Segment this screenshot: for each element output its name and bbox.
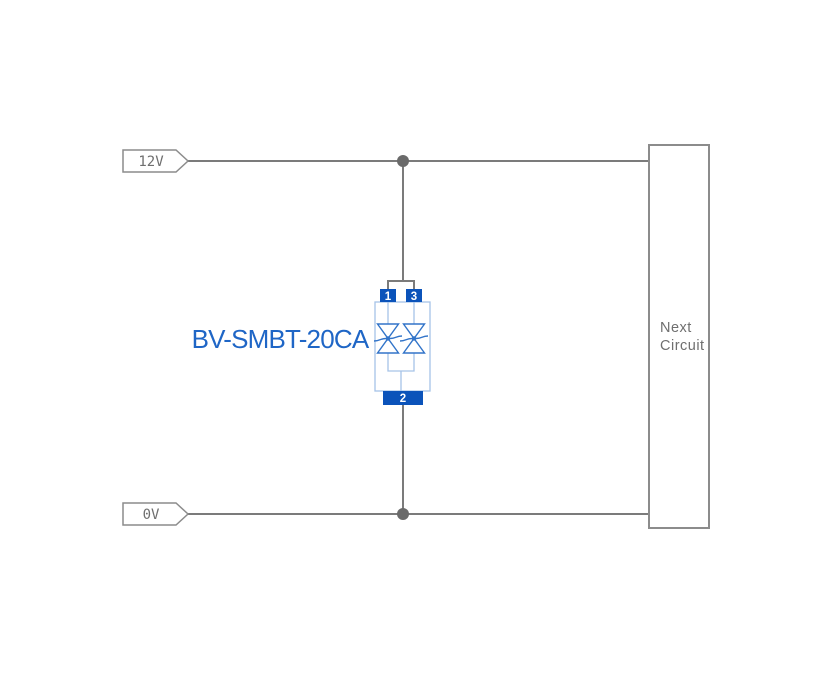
- supply-12v-label: 12V: [138, 154, 164, 170]
- component-label: BV-SMBT-20CA: [192, 324, 370, 354]
- top-junction-dot: [397, 155, 409, 167]
- diagram-canvas: 12V 0V: [0, 0, 832, 675]
- bottom-junction-dot: [397, 508, 409, 520]
- component-body: [375, 302, 430, 391]
- next-circuit-label-line1: Next: [660, 320, 692, 336]
- next-circuit-label-line2: Circuit: [660, 338, 705, 354]
- pin-1-label: 1: [385, 291, 392, 303]
- tvs-diode-component: 1 3 2: [374, 289, 430, 405]
- supply-0v-label: 0V: [143, 507, 160, 523]
- circuit-diagram: 12V 0V: [0, 0, 832, 675]
- pin-2-label: 2: [400, 393, 406, 405]
- pin-3-label: 3: [411, 291, 417, 303]
- next-circuit-box: [649, 145, 709, 528]
